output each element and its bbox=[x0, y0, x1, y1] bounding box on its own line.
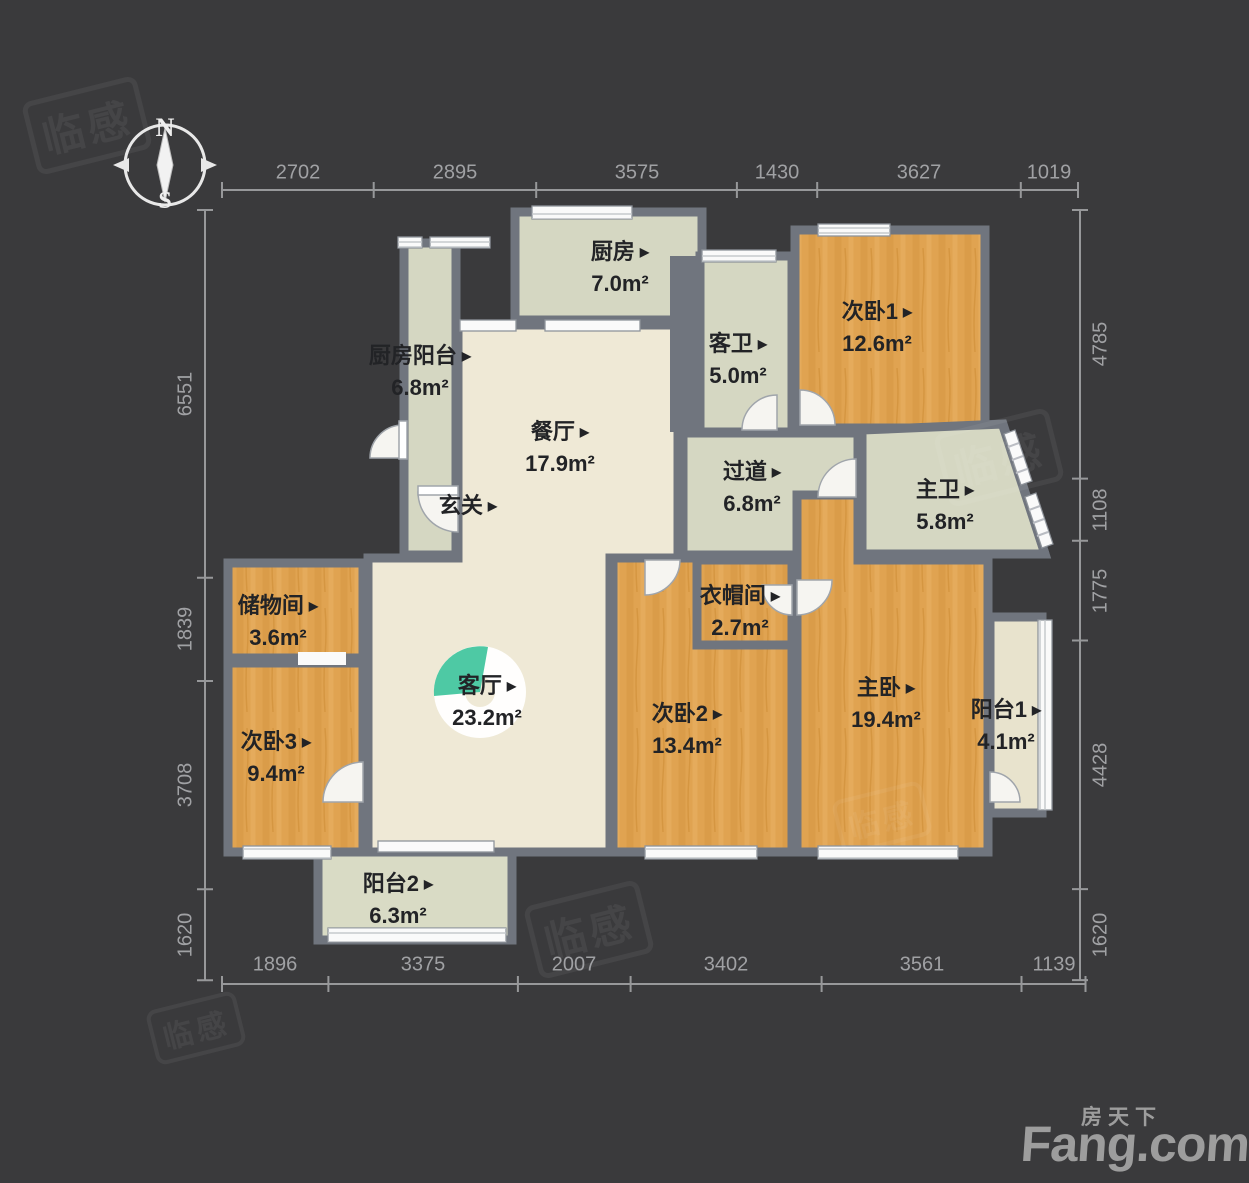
dim-bottom-0: 1896 bbox=[253, 954, 298, 977]
dimension-line-bottom bbox=[222, 976, 1086, 992]
room-area: 6.8m² bbox=[369, 372, 471, 403]
room-label-hallway[interactable]: 过道▶ 6.8m² bbox=[723, 456, 781, 519]
room-name: 餐厅 bbox=[531, 419, 575, 444]
room-label-bedroom-1[interactable]: 次卧1▶ 12.6m² bbox=[842, 296, 912, 359]
dim-top-2: 3575 bbox=[615, 162, 660, 185]
room-name: 厨房 bbox=[591, 239, 635, 264]
door-arc-kitchen-balcony bbox=[370, 425, 403, 458]
dim-left-3: 1620 bbox=[175, 913, 198, 958]
room-name: 客卫 bbox=[709, 331, 753, 356]
room-area: 23.2m² bbox=[452, 702, 522, 733]
room-name: 次卧2 bbox=[652, 701, 708, 726]
room-arrow-icon: ▶ bbox=[580, 425, 589, 439]
room-name: 储物间 bbox=[238, 593, 304, 618]
room-area: 2.7m² bbox=[700, 612, 780, 643]
dim-top-4: 3627 bbox=[897, 162, 942, 185]
room-name: 主卧 bbox=[857, 675, 901, 700]
compass-east-arrow bbox=[201, 158, 217, 172]
room-name: 次卧1 bbox=[842, 299, 898, 324]
room-area: 5.0m² bbox=[709, 360, 767, 391]
room-label-kitchen[interactable]: 厨房▶ 7.0m² bbox=[591, 236, 649, 299]
room-label-cloakroom[interactable]: 衣帽间▶ 2.7m² bbox=[700, 580, 780, 643]
room-label-storage[interactable]: 储物间▶ 3.6m² bbox=[238, 590, 318, 653]
room-label-bedroom-3[interactable]: 次卧3▶ 9.4m² bbox=[241, 726, 311, 789]
room-arrow-icon: ▶ bbox=[424, 877, 433, 891]
dim-right-1: 1108 bbox=[1090, 488, 1113, 531]
room-name: 次卧3 bbox=[241, 729, 297, 754]
room-area: 6.3m² bbox=[363, 900, 433, 931]
room-label-balcony-2[interactable]: 阳台2▶ 6.3m² bbox=[363, 868, 433, 931]
dim-left-2: 3708 bbox=[175, 763, 198, 808]
dimension-line-right bbox=[1072, 210, 1088, 980]
room-label-dining-room[interactable]: 餐厅▶ 17.9m² bbox=[525, 416, 595, 479]
fang-logo: 房天下 Fang.com bbox=[1021, 1103, 1233, 1169]
dim-bottom-5: 1139 bbox=[1032, 954, 1075, 977]
room-name: 阳台2 bbox=[363, 871, 419, 896]
room-label-guest-bathroom[interactable]: 客卫▶ 5.0m² bbox=[709, 328, 767, 391]
room-label-master-bathroom[interactable]: 主卫▶ 5.8m² bbox=[916, 474, 974, 537]
dim-top-3: 1430 bbox=[755, 162, 800, 185]
room-label-balcony-1[interactable]: 阳台1▶ 4.1m² bbox=[971, 694, 1041, 757]
room-name: 衣帽间 bbox=[700, 583, 766, 608]
room-label-entryway[interactable]: 玄关▶ bbox=[439, 490, 497, 522]
door-leaf-kitchen-balcony bbox=[399, 421, 407, 459]
compass-north-label: N bbox=[156, 113, 175, 142]
wall-chunk bbox=[670, 256, 704, 432]
room-area: 13.4m² bbox=[652, 730, 722, 761]
room-arrow-icon: ▶ bbox=[965, 483, 974, 497]
room-arrow-icon: ▶ bbox=[302, 735, 311, 749]
room-arrow-icon: ▶ bbox=[488, 499, 497, 513]
floorplan-page: { "compass": {"north": "N", "south": "S"… bbox=[0, 0, 1249, 1183]
room-arrow-icon: ▶ bbox=[758, 337, 767, 351]
dim-right-2: 1775 bbox=[1090, 569, 1113, 614]
room-name: 阳台1 bbox=[971, 697, 1027, 722]
room-arrow-icon: ▶ bbox=[640, 245, 649, 259]
dim-left-0: 6551 bbox=[175, 372, 198, 417]
room-name: 客厅 bbox=[458, 673, 502, 698]
room-arrow-icon: ▶ bbox=[462, 349, 471, 363]
dim-right-4: 1620 bbox=[1090, 913, 1113, 958]
room-name: 过道 bbox=[723, 459, 767, 484]
room-area: 5.8m² bbox=[916, 506, 974, 537]
room-area: 17.9m² bbox=[525, 448, 595, 479]
dim-top-0: 2702 bbox=[276, 162, 321, 185]
fang-logo-english: Fang.com bbox=[1019, 1115, 1249, 1173]
room-arrow-icon: ▶ bbox=[507, 679, 516, 693]
dim-top-1: 2895 bbox=[433, 162, 478, 185]
compass-west-arrow bbox=[113, 158, 129, 172]
dim-bottom-1: 3375 bbox=[401, 954, 446, 977]
dim-left-1: 1839 bbox=[175, 607, 198, 652]
dim-bottom-3: 3402 bbox=[704, 954, 749, 977]
room-area: 6.8m² bbox=[723, 488, 781, 519]
room-label-kitchen-balcony[interactable]: 厨房阳台▶ 6.8m² bbox=[369, 340, 471, 403]
dim-right-3: 4428 bbox=[1090, 743, 1113, 788]
room-arrow-icon: ▶ bbox=[772, 465, 781, 479]
room-name: 厨房阳台 bbox=[369, 343, 457, 368]
room-arrow-icon: ▶ bbox=[903, 305, 912, 319]
compass-south-label: S bbox=[158, 188, 171, 214]
room-area: 19.4m² bbox=[851, 704, 921, 735]
room-name: 玄关 bbox=[439, 493, 483, 518]
dim-top-5: 1019 bbox=[1027, 162, 1072, 185]
room-area: 9.4m² bbox=[241, 758, 311, 789]
room-name: 主卫 bbox=[916, 477, 960, 502]
room-label-master-bedroom[interactable]: 主卧▶ 19.4m² bbox=[851, 672, 921, 735]
dim-right-0: 4785 bbox=[1090, 322, 1113, 367]
room-label-living-room[interactable]: 客厅▶ 23.2m² bbox=[452, 670, 522, 733]
room-arrow-icon: ▶ bbox=[713, 707, 722, 721]
room-area: 4.1m² bbox=[971, 726, 1041, 757]
room-arrow-icon: ▶ bbox=[1032, 703, 1041, 717]
dim-bottom-2: 2007 bbox=[552, 954, 597, 977]
dim-bottom-4: 3561 bbox=[900, 954, 945, 977]
room-area: 12.6m² bbox=[842, 328, 912, 359]
door-opening-storage bbox=[298, 652, 346, 665]
room-arrow-icon: ▶ bbox=[771, 589, 780, 603]
room-label-bedroom-2[interactable]: 次卧2▶ 13.4m² bbox=[652, 698, 722, 761]
room-area: 7.0m² bbox=[591, 268, 649, 299]
room-area: 3.6m² bbox=[238, 622, 318, 653]
room-arrow-icon: ▶ bbox=[309, 599, 318, 613]
dimension-line-left bbox=[197, 210, 213, 980]
room-arrow-icon: ▶ bbox=[906, 681, 915, 695]
